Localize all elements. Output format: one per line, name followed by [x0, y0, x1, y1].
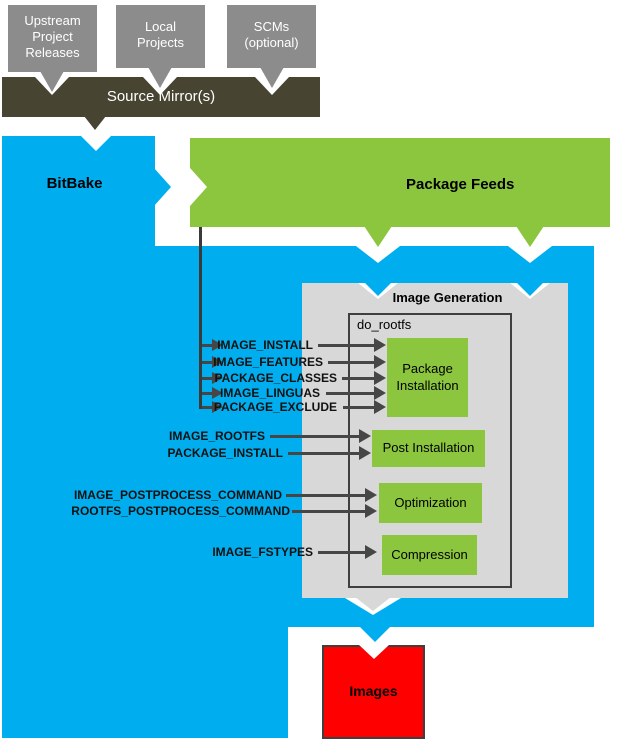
- upstream-releases-label: Upstream Project Releases: [8, 13, 97, 61]
- bitbake-region-bottom-left: [2, 627, 288, 738]
- arrow-line-package-exclude: [343, 406, 376, 409]
- package-feeds-banner: [190, 138, 610, 227]
- var-image-features: IMAGE_FEATURES: [213, 355, 323, 369]
- local-projects-box: Local Projects: [116, 5, 205, 68]
- package-feeds-label: Package Feeds: [406, 176, 514, 193]
- var-image-rootfs: IMAGE_ROOTFS: [169, 429, 265, 443]
- step-optimization-label: Optimization: [394, 495, 466, 511]
- arrow-line-image-features: [328, 361, 376, 364]
- step-compression: Compression: [382, 535, 477, 575]
- arrow-line-package-install: [288, 452, 360, 455]
- arrow-head-package-exclude: [374, 400, 386, 414]
- local-projects-tail: [148, 67, 172, 88]
- stub-line-2: [202, 361, 212, 364]
- arrow-line-image-linguas: [326, 392, 376, 395]
- notch-blue-under-feeds-2: [508, 246, 552, 263]
- arrow-head-image-features: [374, 355, 386, 369]
- var-image-linguas: IMAGE_LINGUAS: [220, 386, 320, 400]
- source-mirror-tail: [84, 116, 106, 130]
- step-compression-label: Compression: [391, 547, 468, 563]
- step-package-installation: Package Installation: [387, 338, 468, 417]
- var-image-install: IMAGE_INSTALL: [217, 338, 313, 352]
- arrow-line-rootfs-postprocess: [292, 510, 366, 513]
- upstream-releases-box: Upstream Project Releases: [8, 5, 97, 72]
- stub-line-3: [202, 377, 212, 380]
- notch-images-top: [358, 644, 390, 659]
- step-optimization: Optimization: [379, 483, 482, 523]
- scms-label: SCMs (optional): [227, 19, 316, 51]
- stub-line-5: [202, 406, 212, 409]
- notch-blue-under-feeds-1: [356, 246, 400, 263]
- bitbake-label: BitBake: [2, 175, 147, 192]
- yocto-image-generation-diagram: BitBake Source Mirror(s) Upstream Projec…: [0, 0, 625, 741]
- arrow-head-package-install: [359, 446, 371, 460]
- upstream-releases-tail: [40, 71, 64, 92]
- arrow-head-image-postprocess: [365, 488, 377, 502]
- local-projects-label: Local Projects: [116, 19, 205, 51]
- image-generation-tail: [355, 597, 391, 611]
- images-label: Images: [322, 683, 425, 699]
- stub-line-1: [202, 344, 212, 347]
- arrow-line-image-postprocess: [286, 494, 366, 497]
- arrow-head-package-classes: [374, 371, 386, 385]
- scms-box: SCMs (optional): [227, 5, 316, 68]
- notch-blue-top: [81, 136, 111, 151]
- package-feeds-tail-1: [364, 226, 392, 247]
- arrow-line-package-classes: [342, 377, 376, 380]
- arrow-line-image-fstypes: [318, 551, 366, 554]
- var-rootfs-postprocess-command: ROOTFS_POSTPROCESS_COMMAND: [71, 504, 290, 518]
- arrow-head-image-rootfs: [359, 429, 371, 443]
- var-package-classes: PACKAGE_CLASSES: [215, 371, 337, 385]
- stub-line-4: [202, 392, 212, 395]
- package-feeds-tail-2: [516, 226, 544, 247]
- bitbake-to-packagefeeds-arrow: [154, 168, 171, 206]
- step-post-installation-label: Post Installation: [383, 440, 475, 456]
- arrow-head-rootfs-postprocess: [365, 504, 377, 518]
- arrow-head-image-install: [374, 338, 386, 352]
- var-package-exclude: PACKAGE_EXCLUDE: [214, 400, 337, 414]
- bitbake-variables-line: [199, 227, 202, 409]
- var-image-fstypes: IMAGE_FSTYPES: [212, 545, 313, 559]
- arrow-line-image-install: [318, 344, 376, 347]
- blue-tail-into-images: [360, 627, 390, 642]
- step-post-installation: Post Installation: [372, 430, 485, 467]
- scms-tail: [260, 67, 284, 88]
- var-package-install: PACKAGE_INSTALL: [167, 446, 283, 460]
- image-generation-title: Image Generation: [335, 290, 560, 305]
- arrow-head-image-fstypes: [365, 545, 377, 559]
- notch-packagefeeds-left: [190, 168, 207, 206]
- do-rootfs-label: do_rootfs: [357, 317, 411, 332]
- step-package-installation-label: Package Installation: [396, 361, 458, 394]
- arrow-head-image-linguas: [374, 386, 386, 400]
- arrow-line-image-rootfs: [270, 435, 360, 438]
- var-image-postprocess-command: IMAGE_POSTPROCESS_COMMAND: [74, 488, 282, 502]
